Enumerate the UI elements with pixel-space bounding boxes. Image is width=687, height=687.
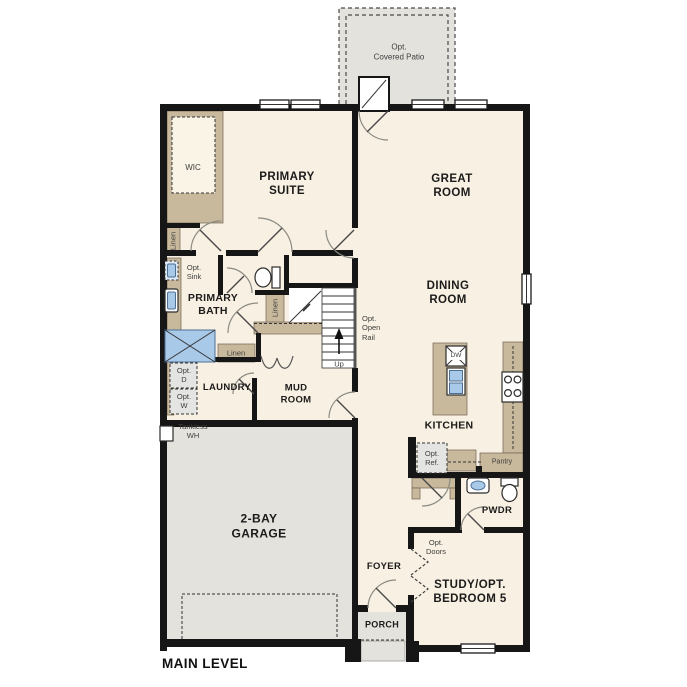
- plan-title: MAIN LEVEL: [162, 656, 248, 671]
- pantry-label: Pantry: [492, 459, 512, 468]
- wic-label: WIC: [185, 163, 201, 173]
- window: [260, 100, 289, 109]
- linen-left-label: Linen: [168, 232, 177, 250]
- great-room-label: GREAT ROOM: [431, 172, 472, 200]
- opt-washer-label: Opt. W: [177, 392, 191, 410]
- window: [522, 274, 531, 304]
- foyer-label: FOYER: [367, 561, 401, 573]
- covered-patio-label: Opt. Covered Patio: [374, 42, 425, 62]
- opt-dryer-label: Opt. D: [177, 366, 191, 384]
- dining-room-label: DINING ROOM: [427, 279, 470, 307]
- primary-bath-label: PRIMARY BATH: [188, 292, 238, 318]
- up-label: Up: [334, 359, 344, 368]
- optional-sink: [165, 261, 178, 280]
- window: [291, 100, 320, 109]
- island-sink: [447, 368, 465, 395]
- powder-toilet: [501, 478, 518, 502]
- porch-label: PORCH: [365, 620, 399, 631]
- garage-label: 2-BAY GARAGE: [231, 511, 286, 540]
- vanity-sink: [165, 289, 178, 312]
- bath-toilet: [255, 267, 280, 288]
- kitchen-counter-2: [447, 450, 476, 471]
- opt-doors-label: Opt. Doors: [426, 538, 446, 556]
- tankless-water-heater: [160, 426, 173, 441]
- kitchen-label: KITCHEN: [425, 420, 474, 433]
- window: [455, 100, 487, 109]
- study-label: STUDY/OPT. BEDROOM 5: [433, 578, 506, 606]
- opt-open-rail-label: Opt. Open Rail: [362, 314, 380, 342]
- window: [412, 100, 444, 109]
- shower: [165, 330, 215, 362]
- porch-step: [361, 641, 405, 661]
- mud-room-label: MUD ROOM: [281, 382, 312, 405]
- laundry-label: LAUNDRY: [203, 382, 251, 394]
- mud-bench: [412, 478, 458, 488]
- floor-plan-drawing: [0, 0, 687, 687]
- opt-ref-label: Opt. Ref.: [425, 449, 439, 467]
- powder-sink: [467, 478, 489, 493]
- primary-suite-label: PRIMARY SUITE: [259, 170, 314, 198]
- range-cooktop: [502, 372, 523, 402]
- linen-stair-label: Linen: [270, 299, 279, 317]
- linen-hall-label: Linen: [227, 348, 245, 357]
- open-rail: [354, 288, 357, 368]
- dishwasher-label: DW: [450, 352, 463, 360]
- window: [461, 644, 495, 653]
- wic-shelving: [172, 117, 215, 193]
- floor-plan: Opt. Covered Patio WIC PRIMARY SUITE GRE…: [0, 0, 687, 687]
- powder-label: PWDR: [482, 505, 512, 517]
- tankless-wh-label: Tankless WH: [178, 422, 207, 440]
- opt-sink-label: Opt. Sink: [187, 263, 202, 281]
